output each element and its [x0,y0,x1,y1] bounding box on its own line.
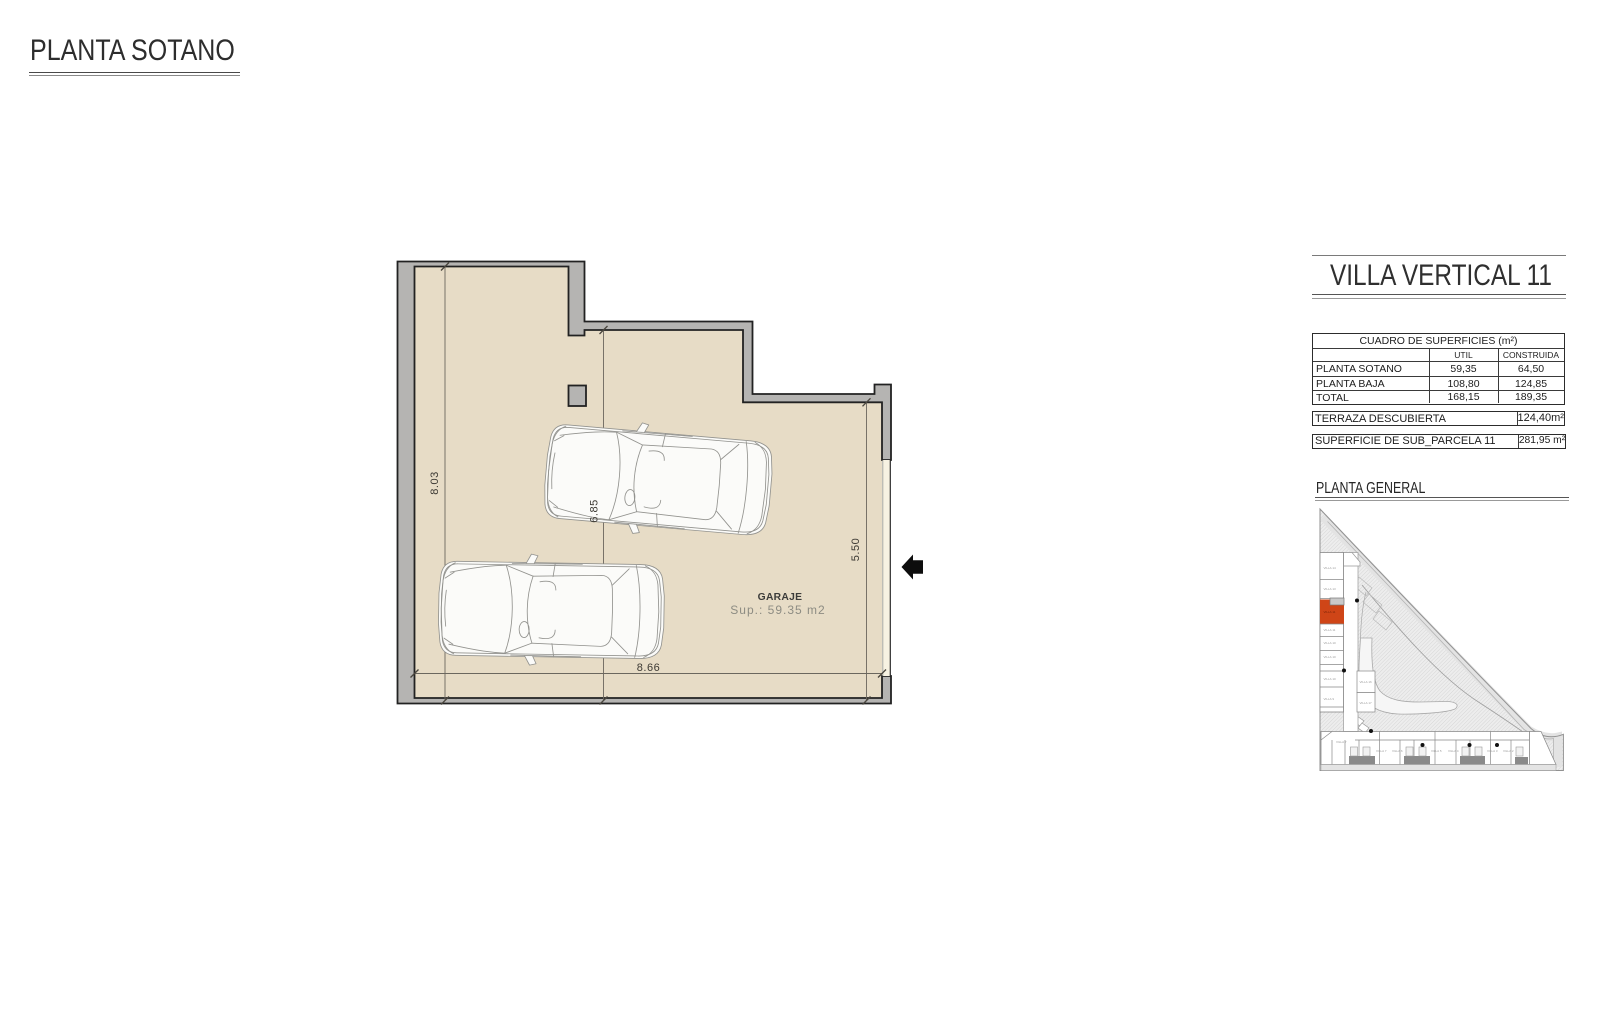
svg-text:VILLA 11: VILLA 11 [1324,610,1336,614]
svg-text:VILLA 10: VILLA 10 [1324,677,1337,681]
svg-text:VILLA 7: VILLA 7 [1336,740,1347,744]
svg-text:VILLA 10: VILLA 10 [1324,641,1337,645]
svg-text:VILLA 7: VILLA 7 [1376,749,1387,753]
svg-text:VILLA 13: VILLA 13 [1324,587,1337,591]
svg-text:VILLA 6: VILLA 6 [1392,749,1403,753]
svg-text:VILLA 9: VILLA 9 [1324,697,1335,701]
svg-text:VILLA 11: VILLA 11 [1324,628,1336,632]
svg-text:8.66: 8.66 [637,662,660,674]
svg-text:GARAJE: GARAJE [758,592,803,603]
svg-text:VILLA 2: VILLA 2 [1503,749,1514,753]
svg-text:VILLA 17: VILLA 17 [1360,701,1373,705]
svg-text:6.85: 6.85 [589,499,601,522]
svg-text:VILLA 3: VILLA 3 [1487,749,1498,753]
svg-text:5.50: 5.50 [850,538,862,561]
svg-text:Sup.: 59.35 m2: Sup.: 59.35 m2 [730,603,825,617]
svg-text:VILLA 16: VILLA 16 [1360,680,1373,684]
svg-text:VILLA 10: VILLA 10 [1324,655,1337,659]
svg-text:8.03: 8.03 [429,471,441,494]
svg-text:VILLA 5: VILLA 5 [1431,749,1442,753]
svg-text:VILLA 14: VILLA 14 [1324,566,1337,570]
svg-text:VILLA 4: VILLA 4 [1448,749,1459,753]
